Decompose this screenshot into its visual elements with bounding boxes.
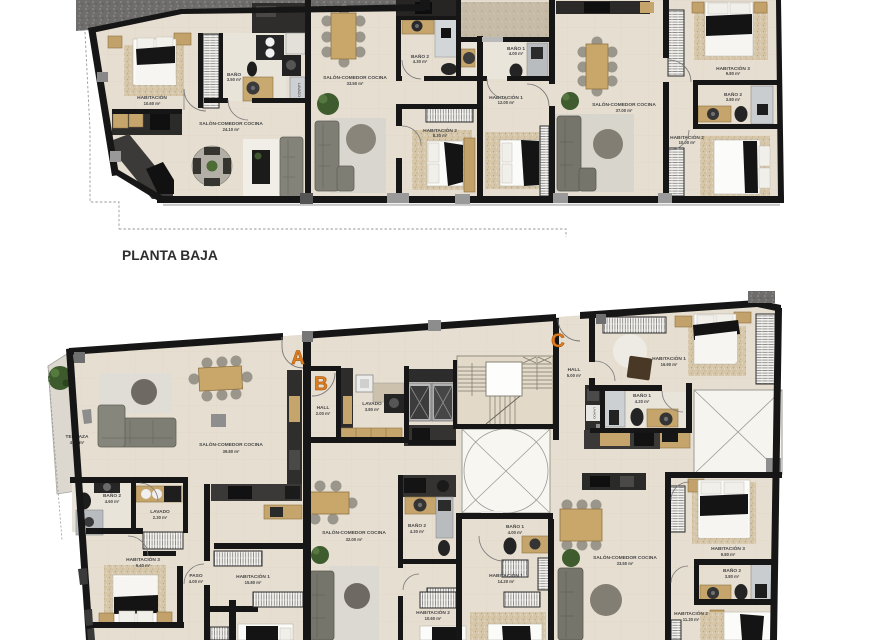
- svg-text:8.30 m²: 8.30 m²: [433, 133, 448, 138]
- svg-text:LAVADO: LAVADO: [593, 407, 597, 419]
- svg-text:4.00 m²: 4.00 m²: [509, 51, 524, 56]
- svg-text:3.80 m²: 3.80 m²: [365, 407, 380, 412]
- svg-text:32.00 m²: 32.00 m²: [346, 537, 363, 542]
- svg-text:BAÑO 1: BAÑO 1: [633, 392, 651, 399]
- svg-text:2.00 m²: 2.00 m²: [316, 411, 331, 416]
- svg-text:15.80 m²: 15.80 m²: [245, 580, 262, 585]
- svg-text:10.00 m²: 10.00 m²: [679, 140, 696, 145]
- svg-text:BAÑO 2: BAÑO 2: [103, 492, 121, 499]
- svg-text:4.00 m²: 4.00 m²: [189, 579, 204, 584]
- svg-text:37.00 m²: 37.00 m²: [616, 108, 633, 113]
- svg-text:4.20 m²: 4.20 m²: [635, 399, 650, 404]
- svg-text:9.80 m²: 9.80 m²: [726, 71, 741, 76]
- svg-text:4.60 m²: 4.60 m²: [105, 499, 120, 504]
- svg-text:LAVADO: LAVADO: [297, 83, 301, 97]
- svg-text:C: C: [551, 331, 565, 352]
- svg-text:33.50 m²: 33.50 m²: [617, 561, 634, 566]
- svg-text:B: B: [314, 374, 328, 395]
- svg-text:10.60 m²: 10.60 m²: [144, 101, 161, 106]
- svg-text:A: A: [291, 348, 305, 369]
- svg-text:11.20 m²: 11.20 m²: [683, 617, 700, 622]
- svg-text:10.60 m²: 10.60 m²: [425, 616, 442, 621]
- svg-text:BAÑO 2: BAÑO 2: [723, 567, 741, 574]
- svg-text:14.20 m²: 14.20 m²: [498, 579, 515, 584]
- svg-text:5.00 m²: 5.00 m²: [567, 373, 582, 378]
- svg-text:16.90 m²: 16.90 m²: [661, 362, 678, 367]
- svg-text:12.00 m²: 12.00 m²: [498, 100, 515, 105]
- svg-text:24.10 m²: 24.10 m²: [223, 127, 240, 132]
- svg-text:9.40 m²: 9.40 m²: [136, 563, 151, 568]
- svg-text:9.80 m²: 9.80 m²: [721, 552, 736, 557]
- svg-text:BAÑO 1: BAÑO 1: [506, 523, 524, 530]
- svg-text:2.30 m²: 2.30 m²: [153, 515, 168, 520]
- svg-text:3.50 m²: 3.50 m²: [227, 77, 242, 82]
- svg-text:4.30 m²: 4.30 m²: [413, 59, 428, 64]
- svg-text:39.80 m²: 39.80 m²: [223, 449, 240, 454]
- svg-text:33.50 m²: 33.50 m²: [347, 81, 364, 86]
- svg-text:4.00 m²: 4.00 m²: [508, 530, 523, 535]
- svg-text:3.80 m²: 3.80 m²: [725, 574, 740, 579]
- svg-text:3.80 m²: 3.80 m²: [726, 97, 741, 102]
- svg-text:BAÑO 2: BAÑO 2: [408, 522, 426, 529]
- svg-text:4.30 m²: 4.30 m²: [410, 529, 425, 534]
- svg-text:PLANTA BAJA: PLANTA BAJA: [122, 248, 218, 263]
